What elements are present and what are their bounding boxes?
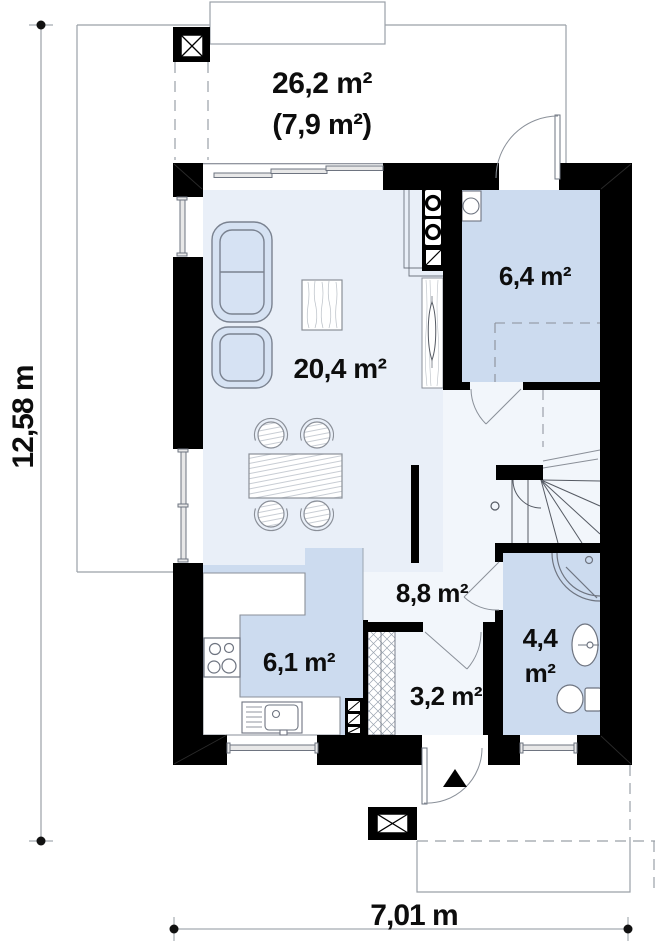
living-room-area-label: 20,4 m² — [294, 353, 387, 384]
bathroom-area-label-line2: m² — [525, 658, 557, 688]
bathroom-area-label-line1: 4,4 — [523, 623, 559, 653]
wardrobe — [368, 629, 395, 735]
sofa — [212, 222, 272, 388]
entrance-arrow — [443, 769, 467, 787]
terrace-column — [173, 27, 210, 160]
terrace-area-label: 26,2 m² — [272, 67, 372, 100]
floor-plan-page: 12,58 m 7,01 m — [0, 0, 655, 943]
stove — [204, 638, 240, 677]
hall-area-label: 8,8 m² — [396, 578, 469, 608]
washbasin — [572, 624, 599, 666]
kitchen-sink — [242, 702, 302, 735]
toilet — [557, 685, 601, 713]
kitchen-area-label: 6,1 m² — [263, 647, 336, 677]
dimension-bottom-label: 7,01 m — [370, 899, 457, 932]
canopy-outline — [210, 2, 385, 44]
vestibule-area-label: 3,2 m² — [410, 681, 483, 711]
tv-cabinet — [422, 278, 443, 388]
dimension-left-label: 12,58 m — [7, 365, 40, 468]
terrace-area-secondary-label: (7,9 m²) — [272, 109, 371, 141]
porch-column — [368, 807, 417, 840]
floor-plan-drawing: 12,58 m 7,01 m — [0, 0, 655, 943]
dimension-bottom: 7,01 m — [170, 899, 633, 941]
kitchen-vent-stack — [345, 698, 363, 735]
boiler — [459, 191, 481, 221]
utility-room-area-label: 6,4 m² — [499, 261, 572, 291]
coffee-table — [302, 280, 342, 330]
dimension-left: 12,58 m — [7, 21, 53, 846]
